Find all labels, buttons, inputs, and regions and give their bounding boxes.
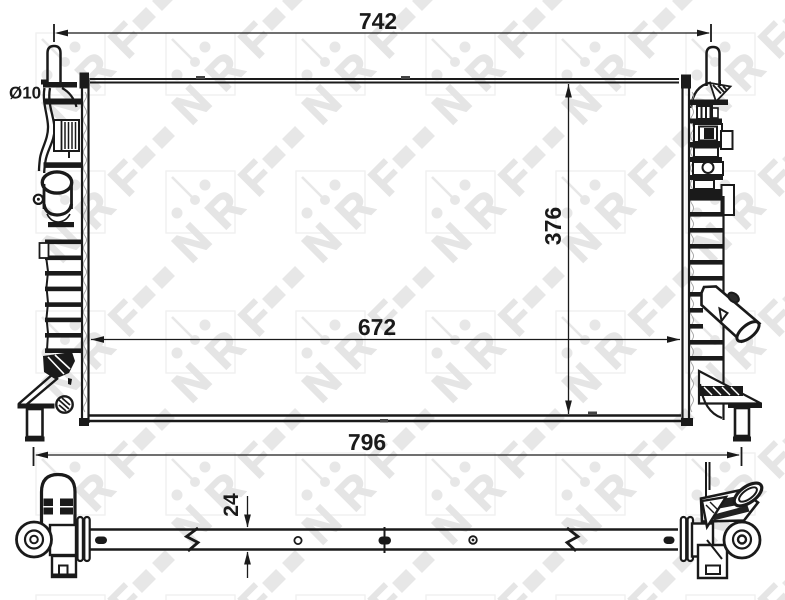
svg-text:742: 742 bbox=[359, 8, 397, 34]
svg-text:24: 24 bbox=[220, 493, 243, 517]
svg-text:376: 376 bbox=[540, 207, 566, 245]
svg-text:Ø10: Ø10 bbox=[9, 84, 41, 103]
svg-text:672: 672 bbox=[358, 314, 396, 340]
svg-text:796: 796 bbox=[348, 429, 386, 455]
